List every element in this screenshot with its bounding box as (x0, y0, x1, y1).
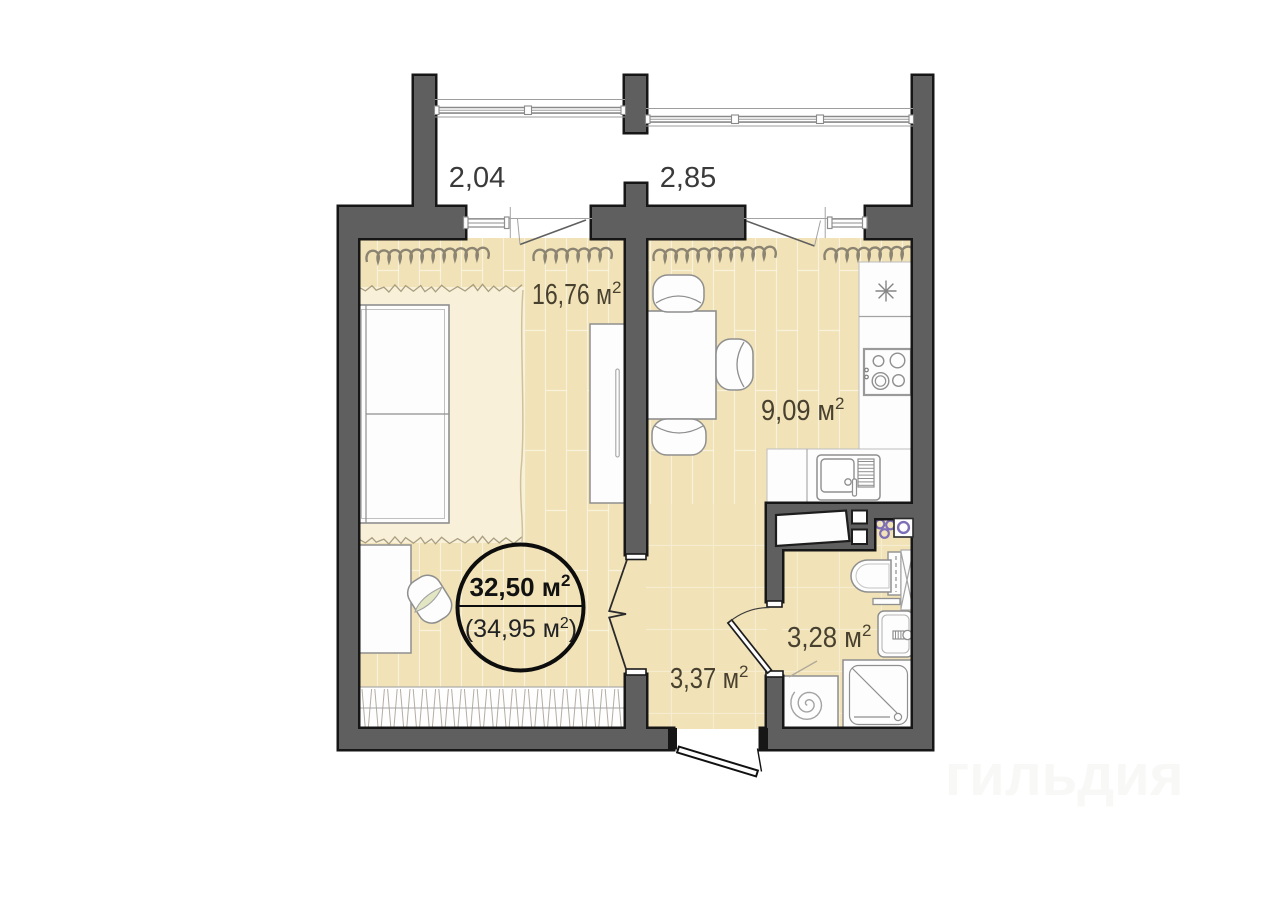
svg-text:16,76 м2: 16,76 м2 (532, 278, 621, 311)
svg-text:3,37 м2: 3,37 м2 (670, 662, 748, 695)
svg-text:3,28 м2: 3,28 м2 (787, 621, 871, 654)
svg-text:9,09 м2: 9,09 м2 (761, 394, 844, 427)
svg-text:32,50 м2: 32,50 м2 (470, 571, 571, 602)
svg-text:гильдия: гильдия (945, 743, 1184, 808)
svg-text:2,04: 2,04 (449, 162, 505, 194)
svg-text:2,85: 2,85 (660, 162, 716, 194)
